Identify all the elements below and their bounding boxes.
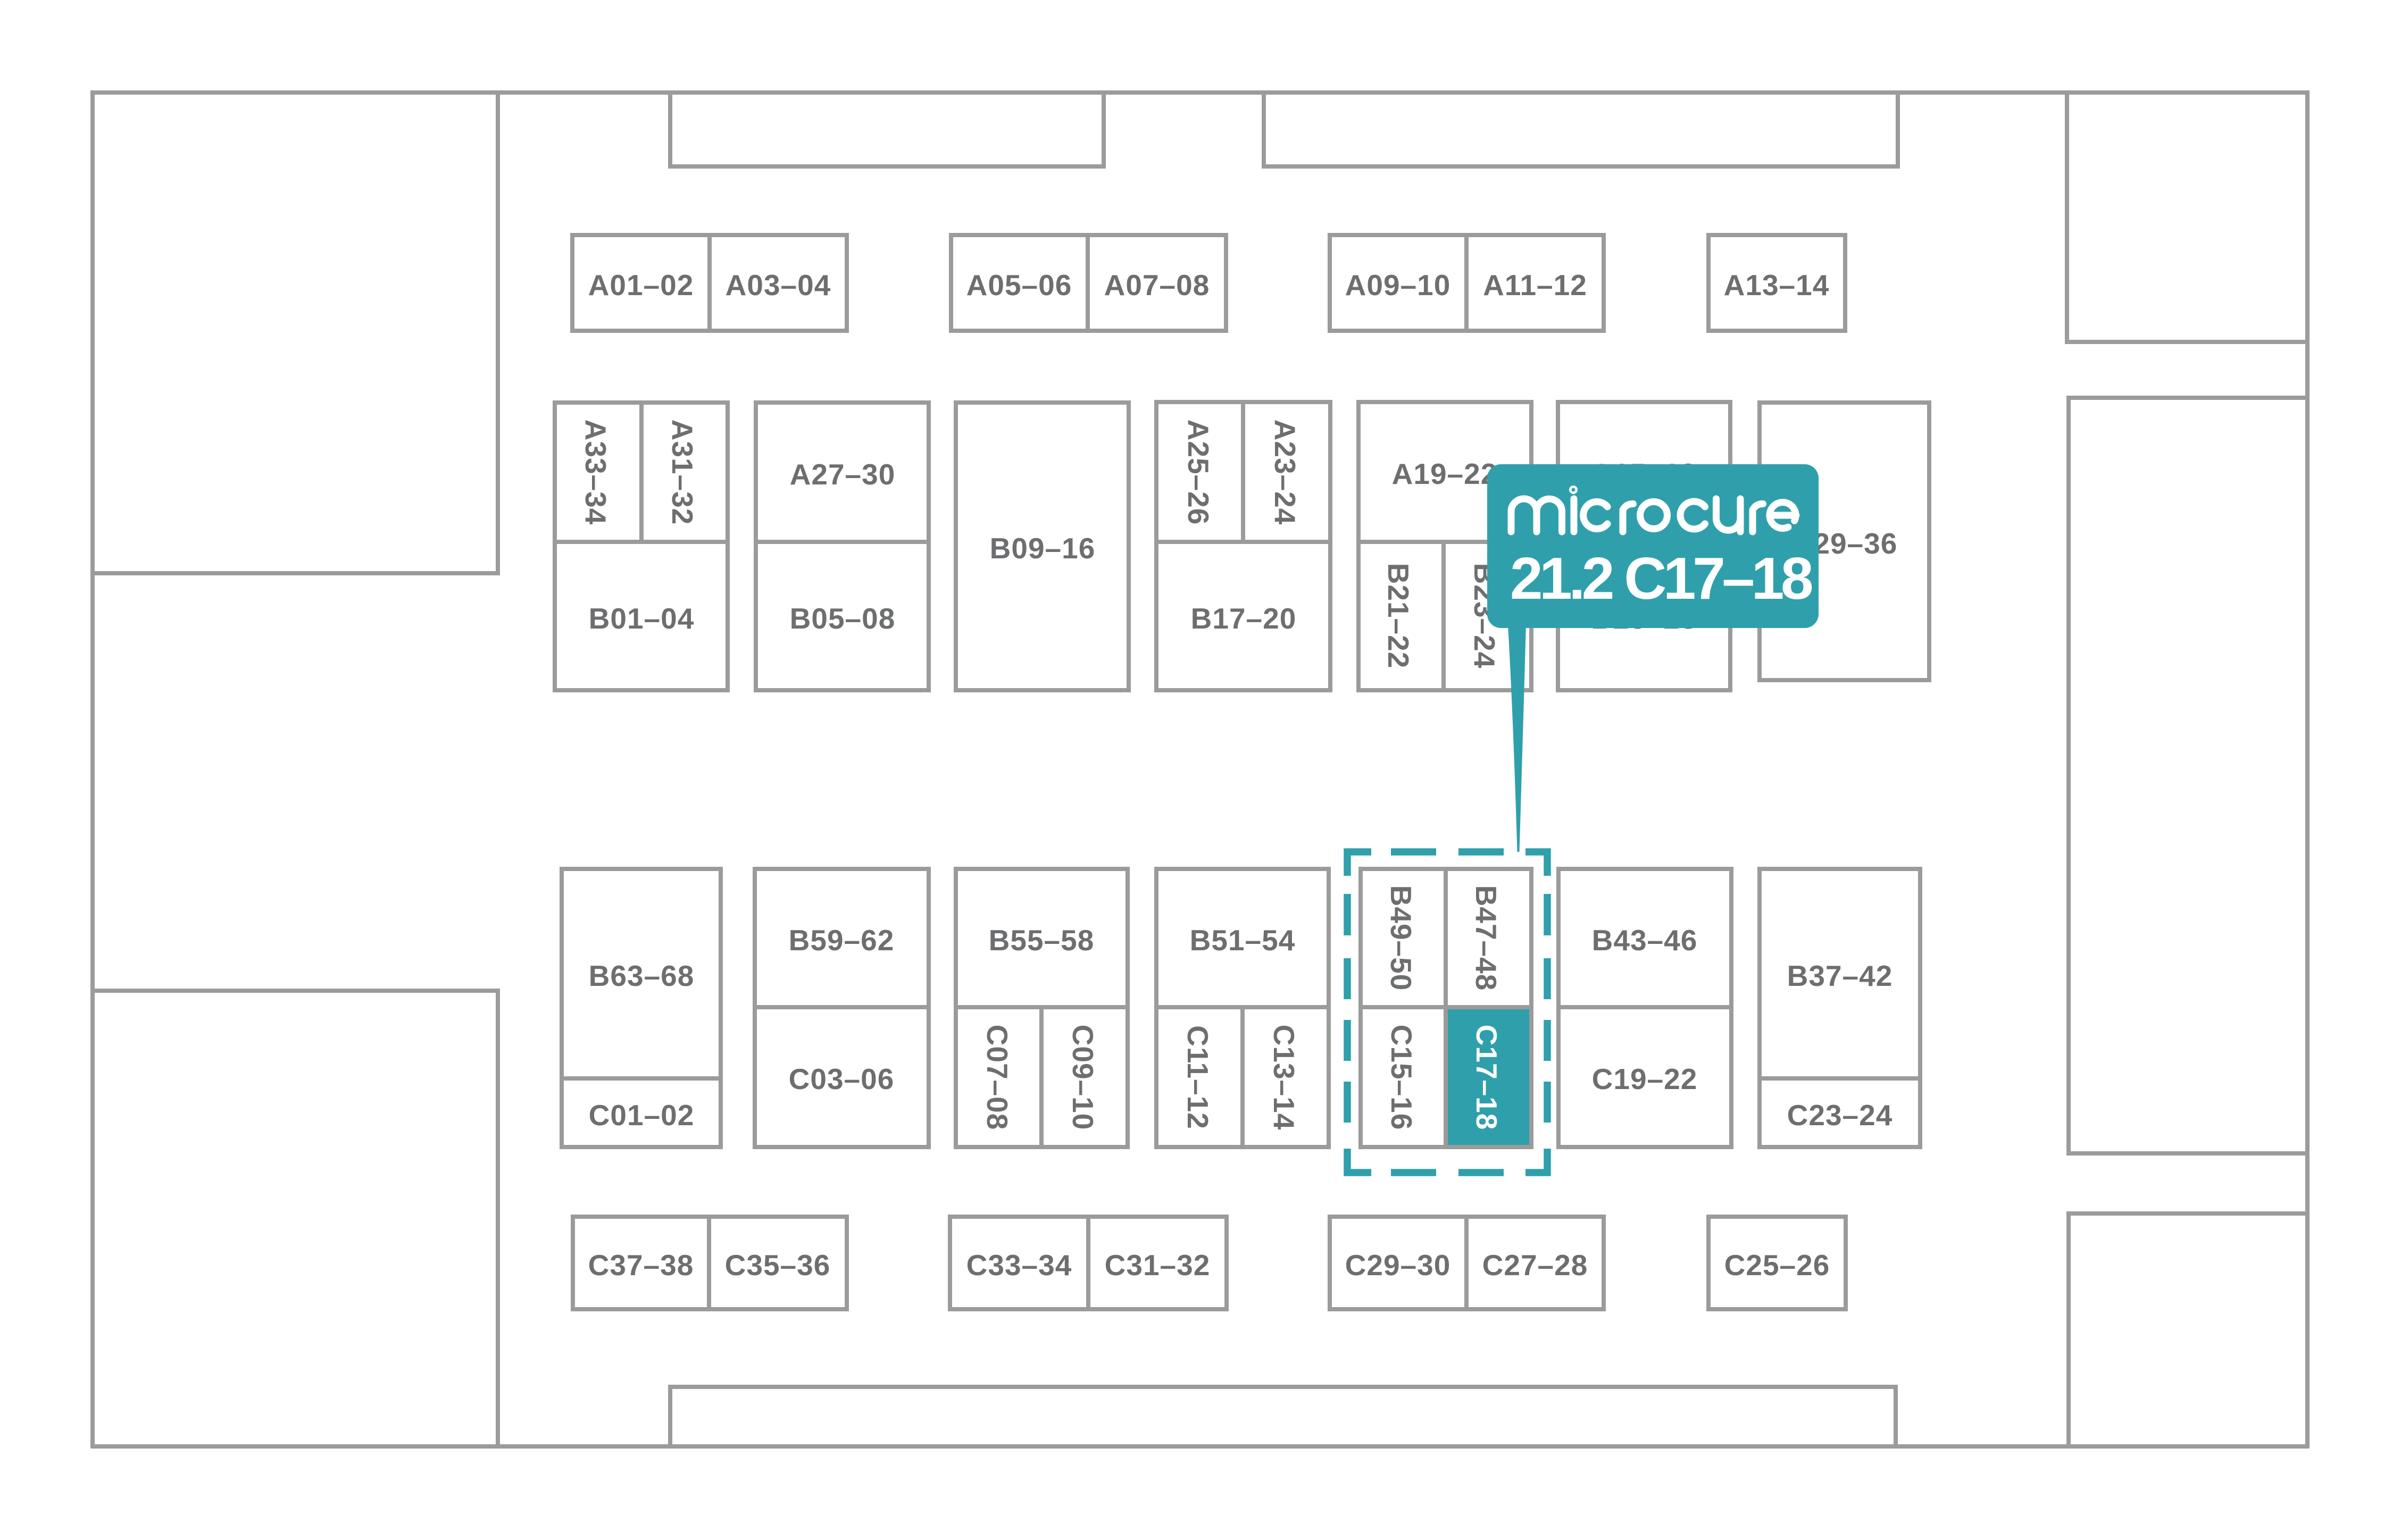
svg-text:A11–12: A11–12: [1483, 269, 1587, 302]
svg-text:A23–24: A23–24: [1269, 420, 1302, 525]
svg-text:C31–32: C31–32: [1105, 1249, 1211, 1282]
svg-text:C27–28: C27–28: [1482, 1249, 1588, 1282]
svg-text:C19–22: C19–22: [1592, 1062, 1698, 1095]
svg-text:A05–06: A05–06: [966, 269, 1072, 302]
svg-text:B17–20: B17–20: [1191, 602, 1297, 635]
svg-text:C01–02: C01–02: [589, 1099, 695, 1132]
svg-text:B47–48: B47–48: [1470, 885, 1503, 991]
svg-text:A13–14: A13–14: [1724, 269, 1830, 302]
svg-text:21.2 C17–18: 21.2 C17–18: [1510, 546, 1812, 612]
svg-text:A31–32: A31–32: [666, 420, 699, 525]
svg-text:A33–34: A33–34: [579, 420, 612, 525]
svg-text:A25–26: A25–26: [1182, 420, 1215, 525]
svg-text:A09–10: A09–10: [1345, 269, 1451, 302]
svg-text:C17–18: C17–18: [1470, 1025, 1503, 1131]
svg-text:B63–68: B63–68: [589, 959, 695, 992]
svg-text:B51–54: B51–54: [1190, 924, 1296, 957]
svg-text:B37–42: B37–42: [1787, 959, 1893, 992]
svg-text:C33–34: C33–34: [966, 1249, 1072, 1282]
svg-text:C11–12: C11–12: [1181, 1025, 1214, 1129]
svg-text:C13–14: C13–14: [1268, 1025, 1300, 1131]
svg-text:C03–06: C03–06: [789, 1062, 895, 1095]
svg-text:A27–30: A27–30: [790, 458, 896, 491]
svg-text:B55–58: B55–58: [989, 924, 1095, 957]
svg-text:C09–10: C09–10: [1066, 1025, 1099, 1131]
svg-text:C07–08: C07–08: [981, 1025, 1014, 1131]
svg-text:B43–46: B43–46: [1592, 924, 1698, 957]
svg-text:A07–08: A07–08: [1104, 269, 1210, 302]
svg-text:C25–26: C25–26: [1724, 1249, 1830, 1282]
svg-text:B21–22: B21–22: [1382, 563, 1415, 669]
svg-text:C23–24: C23–24: [1787, 1099, 1893, 1132]
svg-text:B49–50: B49–50: [1385, 885, 1418, 991]
svg-text:C15–16: C15–16: [1385, 1025, 1418, 1131]
svg-text:B59–62: B59–62: [789, 924, 895, 957]
svg-text:A01–02: A01–02: [588, 269, 694, 302]
svg-text:C29–30: C29–30: [1345, 1249, 1451, 1282]
svg-text:A19–22: A19–22: [1392, 457, 1498, 490]
svg-text:C35–36: C35–36: [725, 1249, 831, 1282]
svg-text:B01–04: B01–04: [589, 602, 695, 635]
svg-text:C37–38: C37–38: [588, 1249, 694, 1282]
svg-text:B05–08: B05–08: [790, 602, 896, 635]
svg-text:B09–16: B09–16: [990, 532, 1096, 565]
svg-text:A03–04: A03–04: [726, 269, 831, 302]
